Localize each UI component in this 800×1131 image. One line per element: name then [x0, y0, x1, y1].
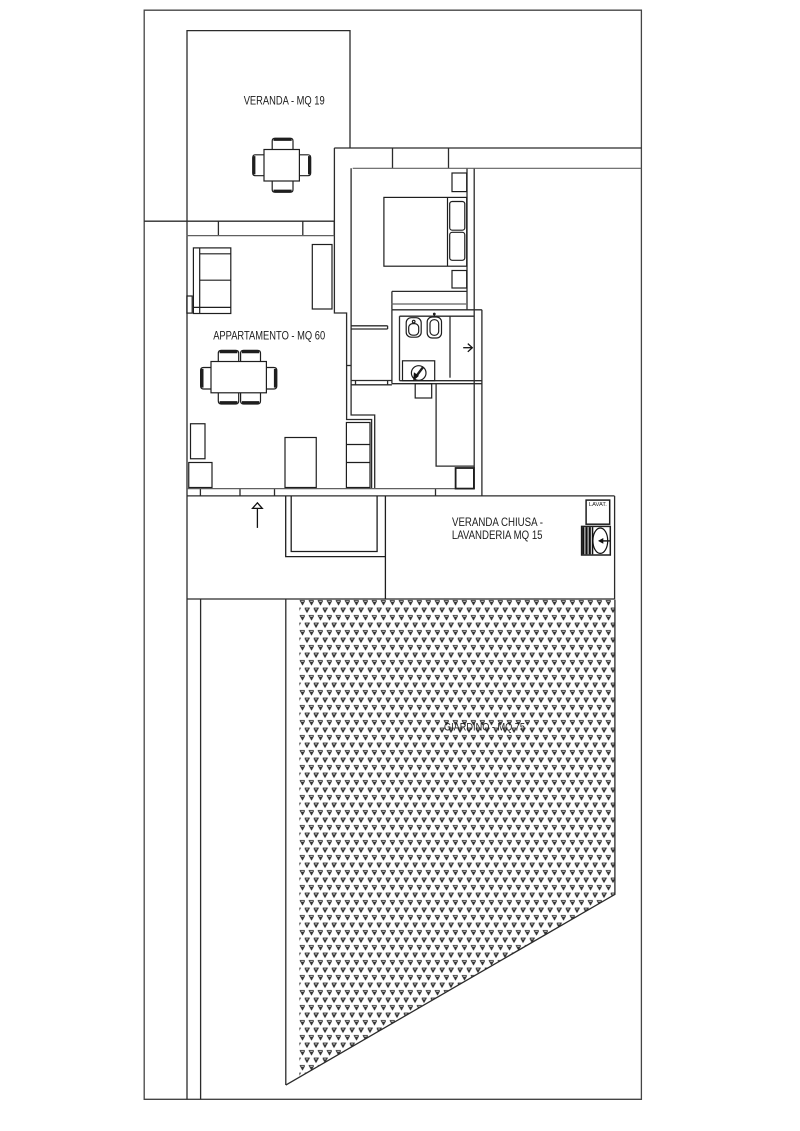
svg-text:APPARTAMENTO - MQ 60: APPARTAMENTO - MQ 60 [213, 329, 325, 343]
svg-text:GIARDINO - MQ 75: GIARDINO - MQ 75 [444, 722, 525, 734]
svg-text:LAVANDERIA MQ 15: LAVANDERIA MQ 15 [452, 528, 543, 542]
svg-text:VERANDA CHIUSA -: VERANDA CHIUSA - [452, 515, 543, 529]
svg-text:LAVAT.: LAVAT. [589, 502, 607, 508]
svg-text:VERANDA - MQ 19: VERANDA - MQ 19 [244, 94, 325, 108]
